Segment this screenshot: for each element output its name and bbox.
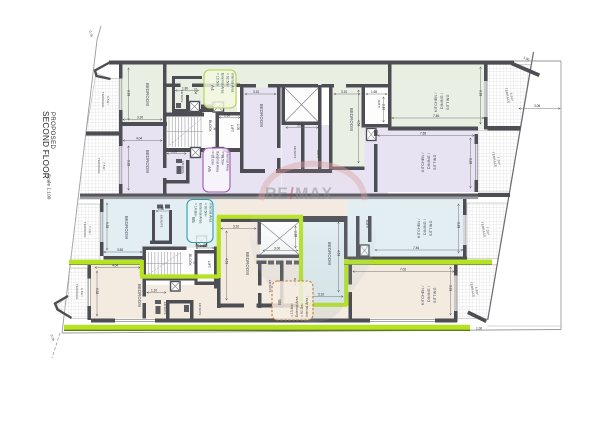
svg-text:KITCHEN /: KITCHEN /	[421, 152, 425, 172]
svg-text:External Area: External Area	[295, 297, 299, 317]
svg-text:Internal Area: Internal Area	[209, 203, 213, 222]
svg-text:LIFT: LIFT	[230, 125, 234, 132]
svg-text:SECOND FLOOR: SECOND FLOOR	[41, 111, 50, 179]
svg-text:= 13.4m²: = 13.4m²	[290, 303, 294, 317]
svg-text:6.5m²: 6.5m²	[106, 96, 110, 105]
svg-text:DINING /: DINING /	[440, 93, 444, 109]
svg-text:9.33: 9.33	[479, 90, 483, 96]
svg-text:9.33: 9.33	[105, 222, 109, 228]
svg-text:4.53: 4.53	[337, 250, 341, 256]
svg-text:= 13.5m²: = 13.5m²	[216, 73, 220, 87]
svg-text:B5: B5	[191, 217, 196, 223]
svg-text:TERRACE: TERRACE	[83, 222, 87, 238]
svg-text:3.33: 3.33	[457, 222, 461, 228]
svg-text:3.33: 3.33	[469, 158, 473, 164]
svg-text:1.50: 1.50	[224, 114, 230, 118]
svg-text:DINING /: DINING /	[423, 219, 427, 235]
svg-text:9.33: 9.33	[95, 288, 99, 294]
svg-text:RE/MAX: RE/MAX	[265, 186, 333, 203]
svg-text:7.46: 7.46	[433, 114, 439, 118]
svg-text:Internal Area: Internal Area	[231, 73, 235, 92]
svg-text:1.50: 1.50	[158, 207, 164, 211]
svg-text:BEDROOM: BEDROOM	[145, 150, 150, 173]
svg-text:SITTING: SITTING	[446, 94, 450, 110]
svg-text:3.10: 3.10	[341, 90, 347, 94]
svg-text:TERRACE: TERRACE	[97, 158, 101, 174]
svg-text:LIFT: LIFT	[207, 261, 211, 268]
svg-text:4.04: 4.04	[136, 136, 142, 140]
svg-text:EN SUITE: EN SUITE	[163, 302, 167, 315]
svg-text:1.00: 1.00	[236, 124, 240, 130]
svg-text:7.46: 7.46	[413, 246, 419, 250]
svg-text:BEDROOM: BEDROOM	[245, 252, 250, 275]
svg-text:1.04: 1.04	[194, 88, 198, 94]
svg-text:KITCHEN /: KITCHEN /	[434, 92, 438, 112]
svg-text:3.10: 3.10	[253, 90, 259, 94]
svg-text:External Area: External Area	[216, 152, 220, 172]
svg-text:6.8m²: 6.8m²	[80, 288, 84, 297]
svg-text:2.30: 2.30	[294, 231, 298, 237]
svg-text:BEDROOM: BEDROOM	[327, 242, 332, 265]
svg-text:7.5m²: 7.5m²	[102, 162, 106, 171]
svg-text:TERRACE: TERRACE	[101, 92, 105, 108]
svg-text:Internal Area: Internal Area	[305, 298, 309, 317]
svg-text:Internal Area: Internal Area	[226, 152, 230, 171]
svg-text:4.53: 4.53	[225, 258, 229, 264]
svg-text:DINING /: DINING /	[427, 286, 431, 302]
svg-text:1.10: 1.10	[151, 289, 157, 293]
svg-text:External Area: External Area	[199, 203, 203, 223]
svg-text:PROPOSED: PROPOSED	[49, 112, 55, 149]
svg-text:3.10: 3.10	[318, 292, 324, 296]
svg-text:BEDROOM: BEDROOM	[124, 216, 129, 239]
svg-text:TERRACE: TERRACE	[75, 284, 79, 300]
svg-text:B6: B6	[277, 299, 282, 305]
svg-text:3.50: 3.50	[117, 248, 123, 252]
svg-text:External Area: External Area	[221, 73, 225, 93]
svg-text:1.00: 1.00	[476, 327, 482, 331]
svg-text:SITTING: SITTING	[433, 154, 437, 170]
svg-text:= 90.3m²: = 90.3m²	[300, 303, 304, 317]
svg-text:9.33: 9.33	[127, 90, 131, 96]
svg-text:'B': 'B'	[193, 261, 197, 265]
svg-text:BATH: BATH	[377, 100, 381, 108]
svg-text:3.10: 3.10	[233, 224, 239, 228]
svg-text:BEDROOM: BEDROOM	[137, 284, 142, 307]
svg-text:2.10: 2.10	[382, 104, 386, 110]
svg-text:A4: A4	[210, 85, 215, 91]
svg-text:7.02: 7.02	[400, 267, 406, 271]
svg-text:= 92.5m²: = 92.5m²	[226, 73, 230, 87]
svg-text:4.53: 4.53	[357, 120, 361, 126]
svg-text:A5: A5	[207, 166, 212, 172]
svg-text:1.10: 1.10	[171, 150, 177, 154]
svg-text:3.08: 3.08	[534, 104, 540, 108]
svg-text:KITCHEN /: KITCHEN /	[421, 285, 425, 305]
svg-text:3.20: 3.20	[137, 115, 143, 119]
svg-text:BATH: BATH	[365, 220, 369, 228]
svg-text:= 90.5m²: = 90.5m²	[204, 203, 208, 217]
svg-text:BLOCK: BLOCK	[188, 254, 192, 267]
svg-text:DINING /: DINING /	[427, 153, 431, 169]
svg-text:1.65: 1.65	[371, 90, 377, 94]
svg-text:EN SUITE: EN SUITE	[268, 280, 272, 293]
svg-text:9.33: 9.33	[127, 160, 131, 166]
svg-text:Scale 1:100: Scale 1:100	[46, 174, 52, 200]
svg-text:1.50: 1.50	[200, 244, 206, 248]
svg-text:BEDROOM: BEDROOM	[349, 108, 354, 131]
svg-text:BEDROOM: BEDROOM	[145, 83, 150, 106]
svg-text:7.3m²: 7.3m²	[88, 226, 92, 235]
svg-text:BEDROOM: BEDROOM	[259, 104, 264, 127]
svg-text:3.00: 3.00	[297, 123, 303, 127]
svg-text:EN SUITE: EN SUITE	[293, 146, 297, 159]
svg-text:EN SUITE: EN SUITE	[180, 90, 184, 103]
svg-text:7.65: 7.65	[420, 131, 426, 135]
svg-text:4.04: 4.04	[112, 263, 118, 267]
svg-text:= 15.0m²: = 15.0m²	[211, 152, 215, 166]
svg-text:3.00: 3.00	[274, 246, 280, 250]
svg-text:BATH: BATH	[316, 150, 320, 158]
svg-text:EN SUITE: EN SUITE	[198, 303, 202, 316]
svg-text:'A': 'A'	[213, 127, 217, 131]
svg-text:SITTING: SITTING	[433, 287, 437, 303]
svg-text:BLOCK: BLOCK	[208, 120, 212, 133]
svg-text:= 14.8m²: = 14.8m²	[194, 203, 198, 217]
svg-text:SITTING: SITTING	[429, 220, 433, 236]
svg-text:EN SUITE: EN SUITE	[160, 215, 164, 228]
svg-text:3.31: 3.31	[449, 285, 453, 291]
svg-text:KITCHEN /: KITCHEN /	[417, 218, 421, 238]
svg-text:= 98.5m²: = 98.5m²	[221, 152, 225, 166]
svg-text:EN SUITE: EN SUITE	[181, 161, 185, 174]
